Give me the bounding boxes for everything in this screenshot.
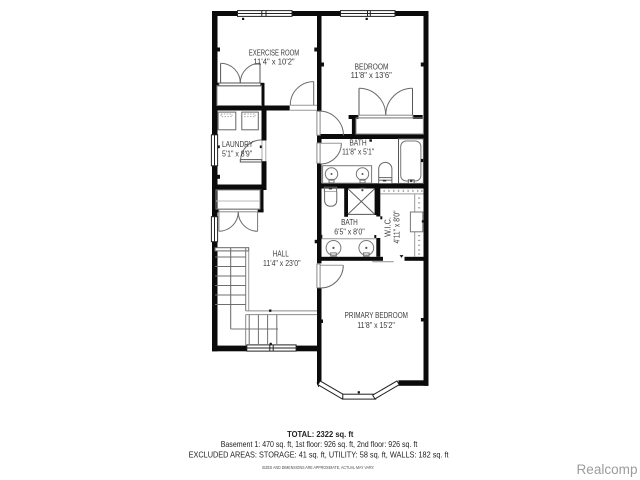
svg-text:4'11" x 8'0": 4'11" x 8'0": [393, 210, 402, 243]
svg-text:11'8" x 5'1": 11'8" x 5'1": [342, 147, 374, 156]
svg-text:6'5" x 8'0": 6'5" x 8'0": [334, 227, 365, 236]
svg-text:HALL: HALL: [273, 250, 289, 259]
svg-text:Realcomp: Realcomp: [577, 462, 638, 477]
svg-text:SIZES AND DIMENSIONS ARE APPRO: SIZES AND DIMENSIONS ARE APPROXIMATE, AC…: [262, 465, 375, 470]
svg-text:TOTAL: 2322 sq. ft: TOTAL: 2322 sq. ft: [287, 429, 353, 439]
svg-text:11'4" x 23'0": 11'4" x 23'0": [263, 259, 301, 268]
svg-text:5'1" x 8'9": 5'1" x 8'9": [222, 150, 252, 159]
svg-text:11'4" x 10'2": 11'4" x 10'2": [253, 58, 294, 67]
svg-text:EXCLUDED AREAS: STORAGE: 41 sq: EXCLUDED AREAS: STORAGE: 41 sq. ft, UTIL…: [189, 450, 450, 460]
svg-text:W.I.C.: W.I.C.: [384, 217, 393, 237]
svg-text:11'8" x 13'6": 11'8" x 13'6": [351, 71, 392, 80]
svg-text:11'8" x 15'2": 11'8" x 15'2": [357, 321, 395, 330]
svg-text:BATH: BATH: [341, 218, 358, 227]
svg-text:EXERCISE ROOM: EXERCISE ROOM: [249, 49, 300, 58]
svg-text:PRIMARY BEDROOM: PRIMARY BEDROOM: [345, 311, 409, 320]
svg-text:LAUNDRY: LAUNDRY: [222, 140, 254, 149]
svg-text:Basement 1: 470 sq. ft, 1st fl: Basement 1: 470 sq. ft, 1st floor: 926 s…: [221, 439, 418, 449]
